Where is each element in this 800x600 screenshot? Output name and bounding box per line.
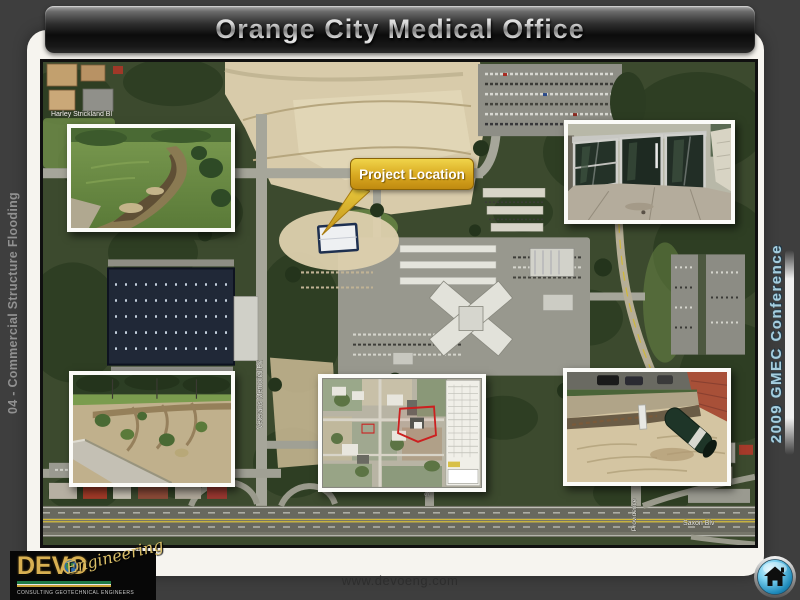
left-rail: 04 - Commercial Structure Flooding (1, 182, 25, 424)
right-rail-label: 2009 GMEC Conference (768, 244, 785, 443)
street-label-providence: Providence (631, 498, 638, 531)
project-location-callout: Project Location (350, 158, 474, 190)
logo-stripe-gold (17, 585, 111, 587)
slide-background: { "slide": { "title": "Orange City Medic… (0, 0, 800, 600)
left-rail-label: 04 - Commercial Structure Flooding (6, 192, 20, 414)
page-title: Orange City Medical Office (45, 6, 755, 53)
street-label-veterans-memorial: Veterans Memorial Pk (257, 360, 264, 429)
inset-photo-flooded-swale (67, 124, 235, 232)
inset-photo-eroded-embankment (69, 371, 235, 487)
devo-logo-tagline: CONSULTING GEOTECHNICAL ENGINEERS (17, 590, 134, 596)
devo-logo: DEVO Engineering CONSULTING GEOTECHNICAL… (10, 551, 156, 600)
parking-lot-east (671, 254, 745, 354)
home-button[interactable] (753, 555, 797, 599)
right-rail: 2009 GMEC Conference (762, 228, 790, 460)
street-label-saxon: Saxon Blv (683, 520, 715, 527)
inset-photo-storefront-doors (564, 120, 735, 224)
street-label-harley-strickland: Harley Strickland Bl (51, 111, 112, 118)
title-bar: Orange City Medical Office (45, 6, 755, 53)
callout-label: Project Location (359, 167, 465, 182)
callout-tail (318, 186, 370, 236)
inset-photo-site-plan (318, 374, 486, 492)
inset-photo-exposed-pipe (563, 368, 731, 486)
